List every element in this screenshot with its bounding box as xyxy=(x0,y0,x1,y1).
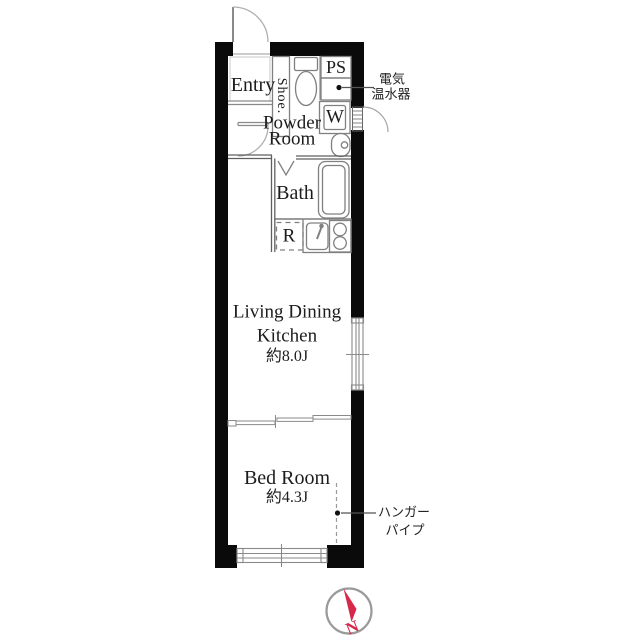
toilet-tank xyxy=(295,58,318,71)
wall-right-lower xyxy=(351,390,364,568)
entry-label: Entry xyxy=(231,75,275,95)
partition-stub xyxy=(228,421,236,427)
water-heater-label-line1: 電気 xyxy=(379,74,405,87)
ldk-label-line1: Living Dining xyxy=(233,303,341,322)
bedroom-label: Bed Room xyxy=(244,468,330,488)
entry-door-arc xyxy=(233,7,268,42)
wall-right-upper xyxy=(351,42,364,108)
bath-door-fold-symbol xyxy=(278,161,294,175)
shoe-closet-label: Shoe. xyxy=(274,78,288,115)
bedroom-window-jamb-right xyxy=(321,549,327,563)
bathtub-inner xyxy=(323,166,346,215)
partition-panel-3 xyxy=(313,416,351,420)
bedroom-window xyxy=(237,544,327,567)
meter-box-door xyxy=(353,107,389,132)
ldk-window-jamb-bottom xyxy=(352,385,364,390)
compass: N xyxy=(327,589,372,639)
ldk-label-line2: Kitchen xyxy=(257,327,317,346)
water-heater-label-line2: 温水器 xyxy=(371,89,410,102)
toilet-bowl xyxy=(296,72,317,106)
wall-left xyxy=(215,42,228,568)
meter-box-door-arc xyxy=(363,107,388,132)
hanger-pipe-dot xyxy=(335,510,340,515)
hanger-pipe-label-line1: ハンガー xyxy=(378,507,430,520)
wall-bottom-left-block xyxy=(215,545,237,568)
washer-label: W xyxy=(326,108,344,127)
refrigerator-label: R xyxy=(283,227,296,246)
wall-bottom-right-block xyxy=(327,545,364,568)
wall-right-middle xyxy=(351,130,364,318)
entry-door xyxy=(233,7,270,57)
hanger-pipe-label-line2: パイプ xyxy=(385,525,424,538)
stove-burner-1 xyxy=(334,223,347,236)
powder-room-label-line2: Room xyxy=(269,130,315,149)
toilet xyxy=(295,56,321,106)
bedroom-window-jamb-left xyxy=(237,549,243,563)
partition-panel-2 xyxy=(277,418,313,421)
water-heater-dot xyxy=(336,85,341,90)
kitchen-faucet-head xyxy=(320,224,323,227)
sliding-partition xyxy=(228,415,351,428)
bath-label: Bath xyxy=(276,183,314,203)
stove-burner-2 xyxy=(334,237,347,250)
water-heater-box xyxy=(321,78,351,100)
ldk-size-label: 約8.0J xyxy=(266,349,308,365)
compass-north-label: N xyxy=(343,616,362,638)
kitchen-faucet xyxy=(317,227,322,239)
ldk-window xyxy=(346,318,369,390)
partition-panel-1 xyxy=(236,421,275,425)
ps-label: PS xyxy=(326,58,346,76)
floorplan-canvas: N Entry Shoe. PS W Powder Room Bath R Li… xyxy=(0,0,640,639)
washbasin-drain xyxy=(341,142,347,148)
wall-top-right xyxy=(270,42,364,56)
bedroom-size-label: 約4.3J xyxy=(266,490,308,506)
ldk-window-jamb-top xyxy=(352,318,364,323)
